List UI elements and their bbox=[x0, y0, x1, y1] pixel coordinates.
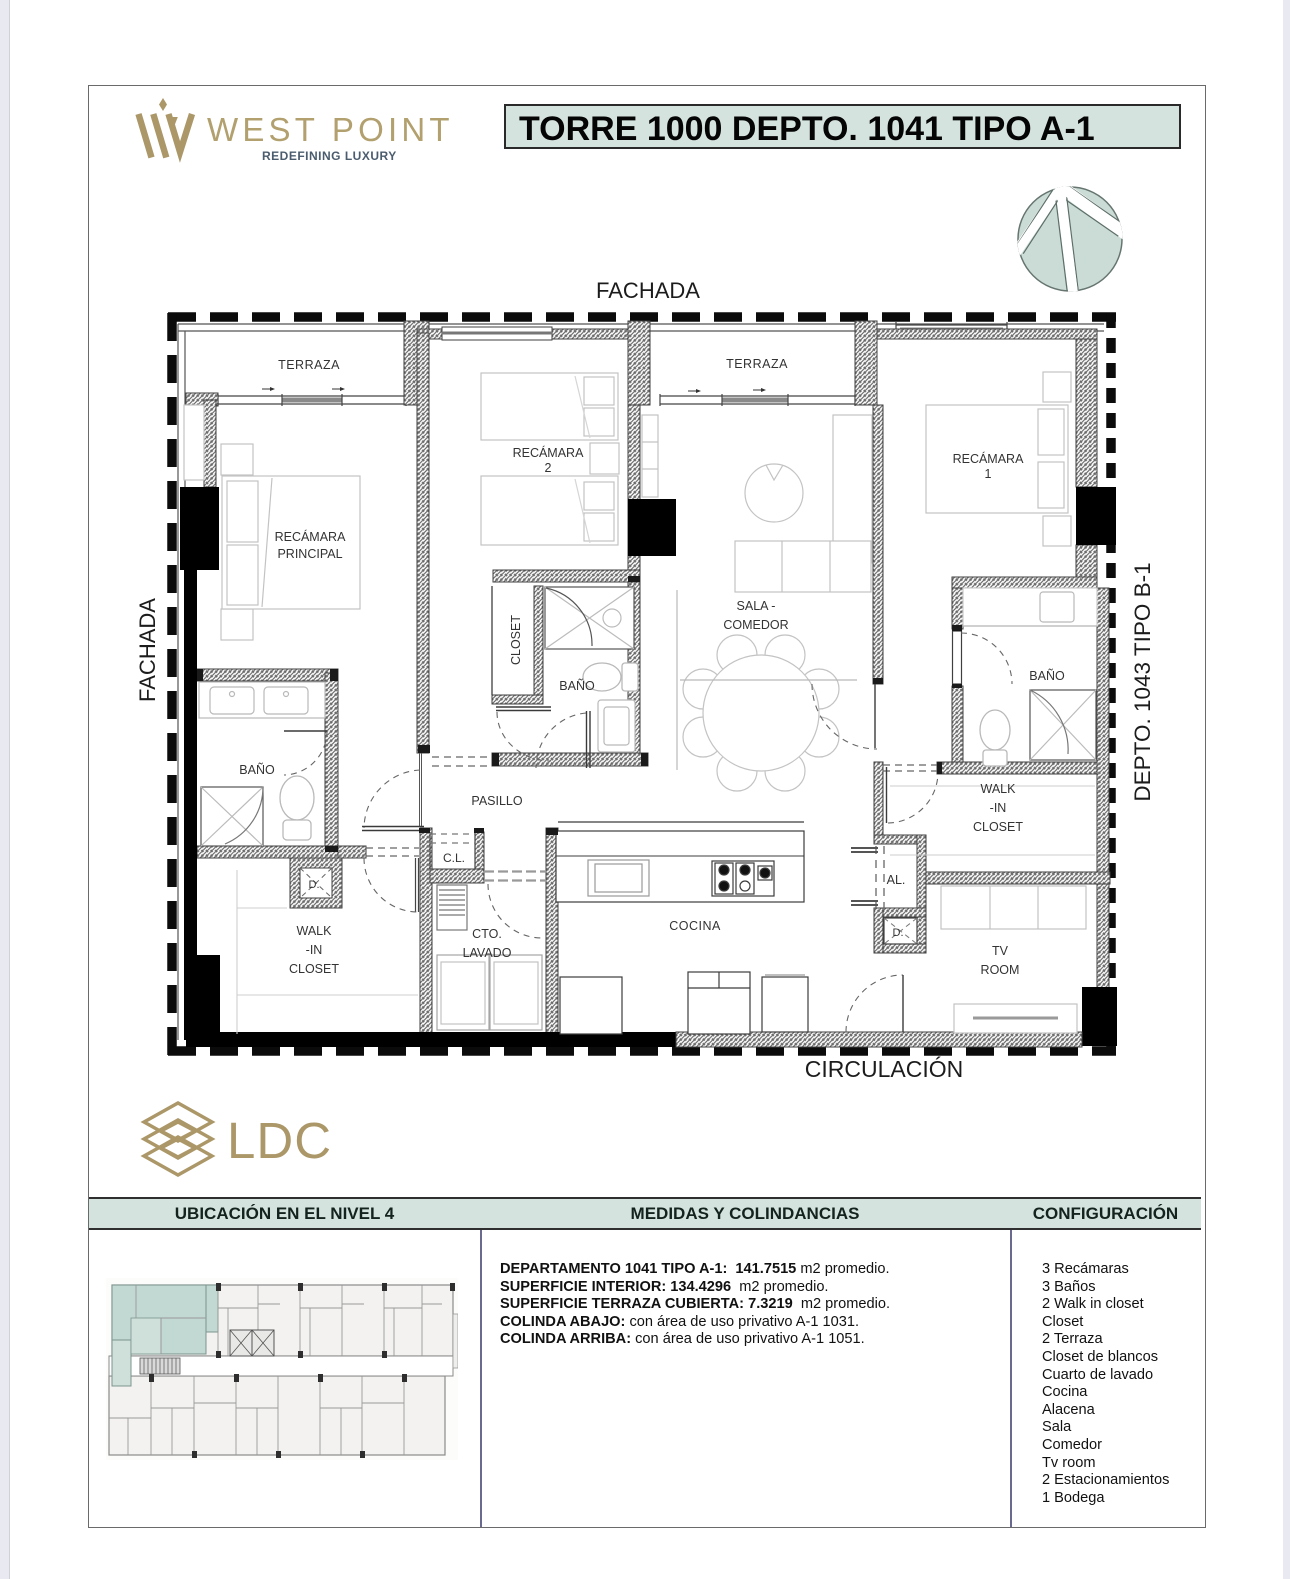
svg-text:TERRAZA: TERRAZA bbox=[726, 357, 788, 371]
svg-text:FACHADA: FACHADA bbox=[135, 598, 160, 702]
svg-text:LAVADO: LAVADO bbox=[463, 946, 512, 960]
svg-text:FACHADA: FACHADA bbox=[596, 278, 700, 303]
svg-text:CLOSET: CLOSET bbox=[509, 615, 523, 665]
svg-text:D.: D. bbox=[309, 879, 320, 891]
svg-text:BAÑO: BAÑO bbox=[1029, 669, 1065, 683]
svg-text:TERRAZA: TERRAZA bbox=[278, 358, 340, 372]
svg-text:RECÁMARA: RECÁMARA bbox=[513, 445, 585, 460]
svg-text:RECÁMARA: RECÁMARA bbox=[275, 529, 347, 544]
svg-text:COMEDOR: COMEDOR bbox=[723, 618, 788, 632]
svg-text:RECÁMARA: RECÁMARA bbox=[953, 451, 1025, 466]
svg-text:PRINCIPAL: PRINCIPAL bbox=[277, 547, 342, 561]
svg-text:SALA -: SALA - bbox=[737, 599, 776, 613]
svg-text:WALK: WALK bbox=[981, 782, 1017, 796]
svg-text:CLOSET: CLOSET bbox=[289, 962, 339, 976]
svg-text:-IN: -IN bbox=[990, 801, 1007, 815]
svg-text:ROOM: ROOM bbox=[981, 963, 1020, 977]
svg-text:2: 2 bbox=[545, 461, 552, 475]
svg-text:-IN: -IN bbox=[306, 943, 323, 957]
svg-text:PASILLO: PASILLO bbox=[471, 794, 522, 808]
svg-text:D.: D. bbox=[893, 927, 904, 939]
svg-text:BAÑO: BAÑO bbox=[559, 679, 595, 693]
svg-text:WALK: WALK bbox=[297, 924, 333, 938]
svg-text:CTO.: CTO. bbox=[472, 927, 502, 941]
svg-text:CLOSET: CLOSET bbox=[973, 820, 1023, 834]
svg-text:COCINA: COCINA bbox=[669, 919, 721, 933]
svg-text:1: 1 bbox=[985, 467, 992, 481]
svg-text:DEPTO. 1043 TIPO B-1: DEPTO. 1043 TIPO B-1 bbox=[1130, 562, 1155, 801]
svg-text:CIRCULACIÓN: CIRCULACIÓN bbox=[805, 1056, 963, 1082]
svg-text:C.L.: C.L. bbox=[443, 851, 465, 865]
svg-text:AL.: AL. bbox=[887, 873, 906, 887]
svg-text:TV: TV bbox=[992, 944, 1009, 958]
svg-text:BAÑO: BAÑO bbox=[239, 763, 275, 777]
